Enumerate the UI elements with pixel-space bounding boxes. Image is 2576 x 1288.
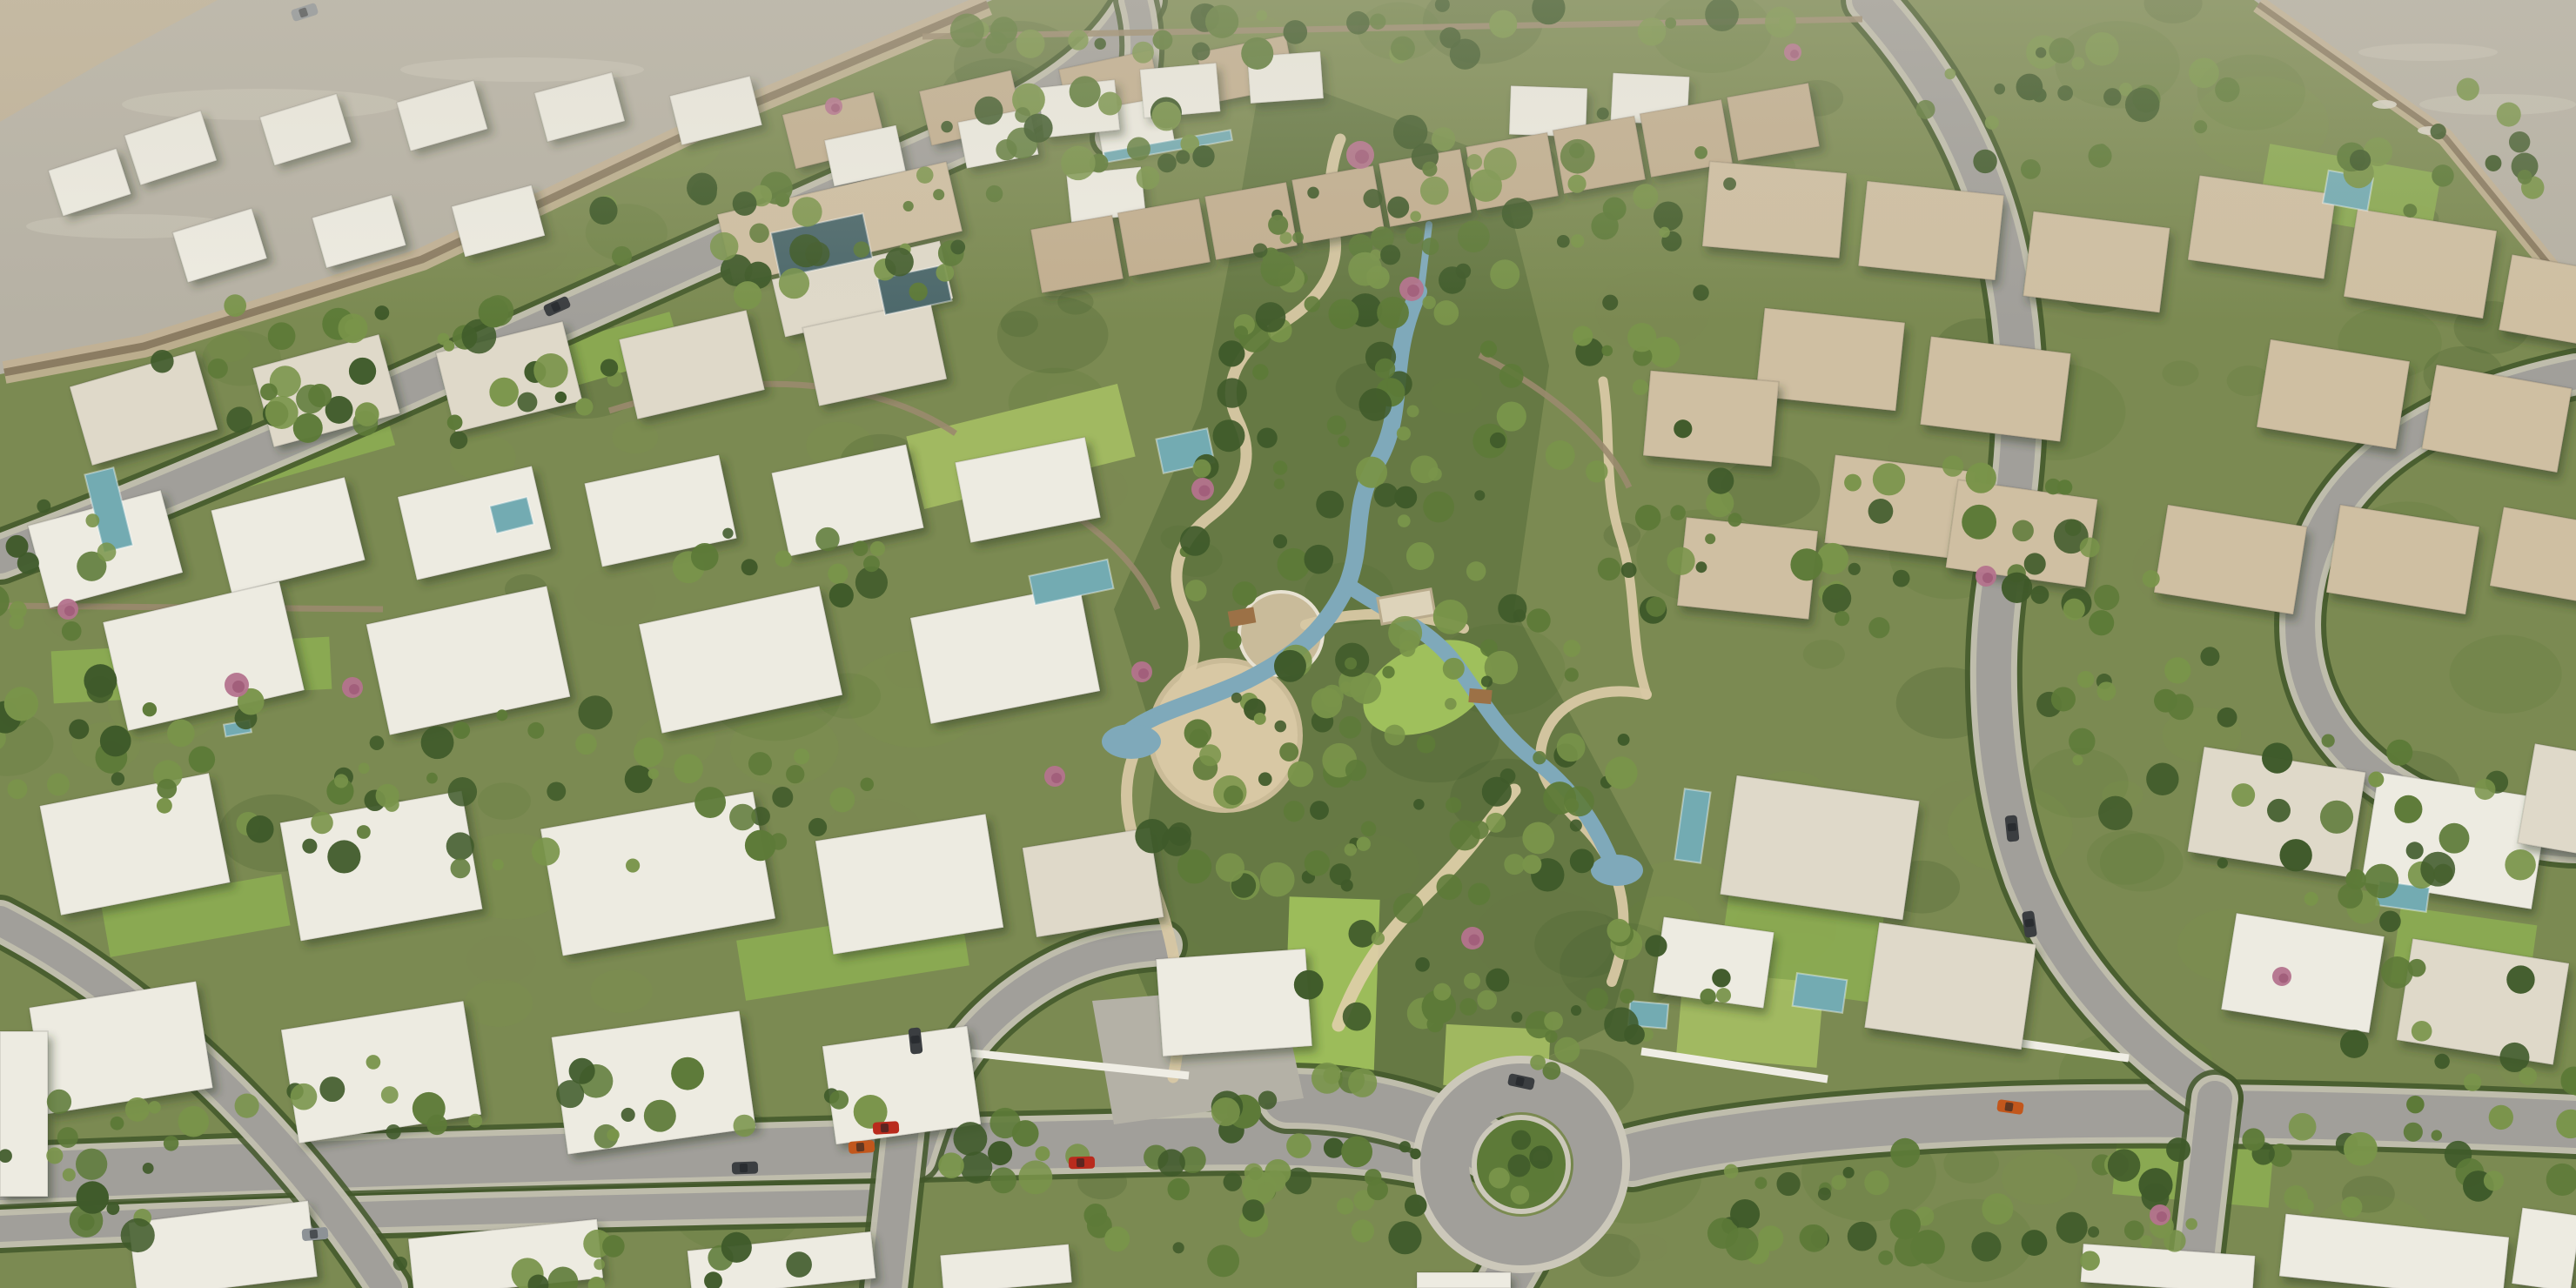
aerial-render-stage — [0, 0, 2576, 1288]
atmospheric-haze-overlay — [0, 0, 2576, 1288]
masterplan-aerial-view — [0, 0, 2576, 1288]
